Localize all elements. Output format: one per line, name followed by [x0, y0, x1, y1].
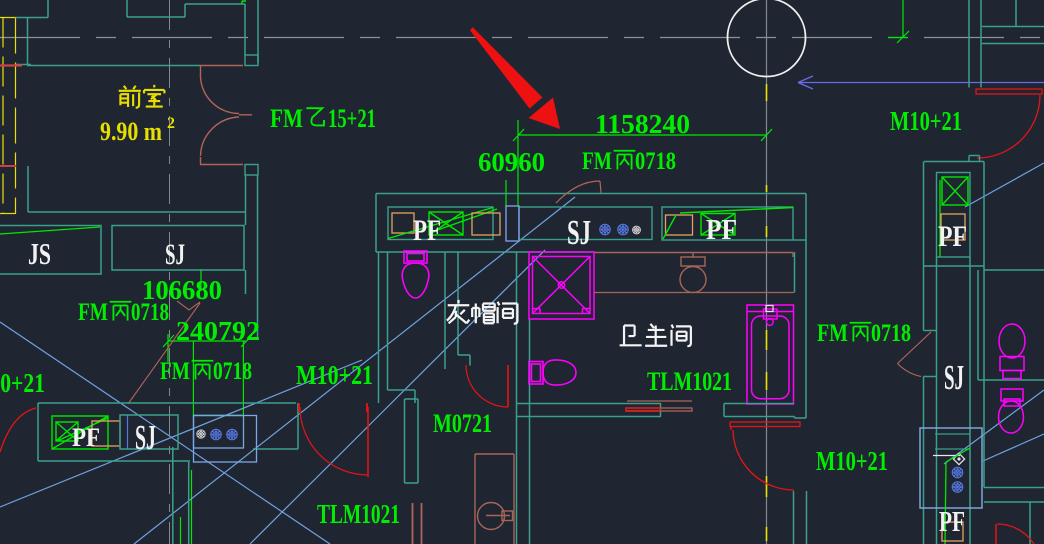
svg-text:15+21: 15+21 — [328, 104, 376, 133]
svg-text:PF: PF — [939, 507, 965, 538]
svg-text:FM: FM — [160, 358, 190, 385]
svg-text:2: 2 — [167, 115, 175, 132]
svg-text:PF: PF — [72, 423, 100, 452]
svg-text:SJ: SJ — [567, 213, 591, 252]
svg-text:M10+21: M10+21 — [296, 360, 373, 390]
svg-text:PF: PF — [706, 214, 737, 246]
svg-text:M10+21: M10+21 — [890, 106, 962, 136]
svg-text:M0721: M0721 — [433, 409, 492, 438]
svg-text:PF: PF — [938, 220, 967, 253]
svg-text:1158240: 1158240 — [595, 109, 690, 139]
svg-text:TLM1021: TLM1021 — [647, 367, 732, 396]
svg-text:SJ: SJ — [165, 238, 185, 271]
svg-text:JS: JS — [28, 236, 51, 271]
svg-text:M10+21: M10+21 — [816, 446, 888, 476]
svg-text:FM: FM — [270, 104, 303, 133]
svg-text:M10+21: M10+21 — [0, 368, 45, 398]
svg-text:60960: 60960 — [478, 147, 545, 177]
svg-text:SJ: SJ — [135, 418, 156, 457]
svg-text:FM: FM — [817, 320, 848, 347]
svg-text:240792: 240792 — [176, 316, 260, 346]
svg-text:0718: 0718 — [213, 358, 252, 385]
svg-text:TLM1021: TLM1021 — [317, 499, 400, 529]
svg-text:FM: FM — [582, 148, 612, 175]
svg-text:9.90 m: 9.90 m — [100, 117, 162, 146]
svg-text:SJ: SJ — [944, 358, 964, 397]
svg-text:0718: 0718 — [131, 299, 169, 326]
svg-text:FM: FM — [78, 299, 108, 326]
svg-text:0718: 0718 — [635, 148, 676, 175]
svg-text:PF: PF — [413, 214, 441, 247]
svg-text:0718: 0718 — [871, 320, 911, 347]
